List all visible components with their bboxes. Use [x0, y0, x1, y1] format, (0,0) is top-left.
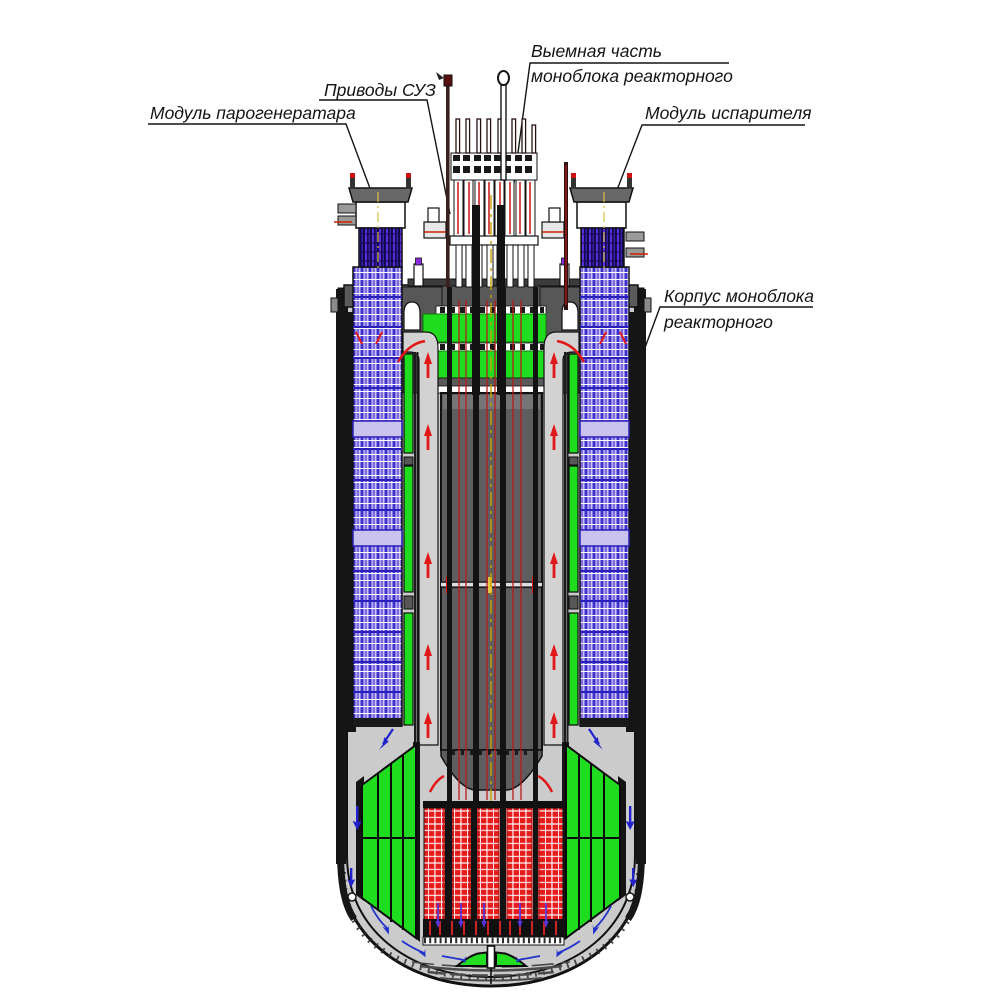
- svg-text:Приводы СУЗ: Приводы СУЗ: [324, 80, 436, 100]
- svg-text:Выемная часть: Выемная часть: [531, 41, 662, 61]
- svg-text:реакторного: реакторного: [663, 312, 773, 332]
- svg-text:моноблока реакторного: моноблока реакторного: [531, 66, 733, 86]
- svg-text:Модуль парогенератара: Модуль парогенератара: [150, 103, 356, 123]
- svg-text:Модуль испарителя: Модуль испарителя: [645, 103, 812, 123]
- svg-text:Корпус моноблока: Корпус моноблока: [664, 286, 814, 306]
